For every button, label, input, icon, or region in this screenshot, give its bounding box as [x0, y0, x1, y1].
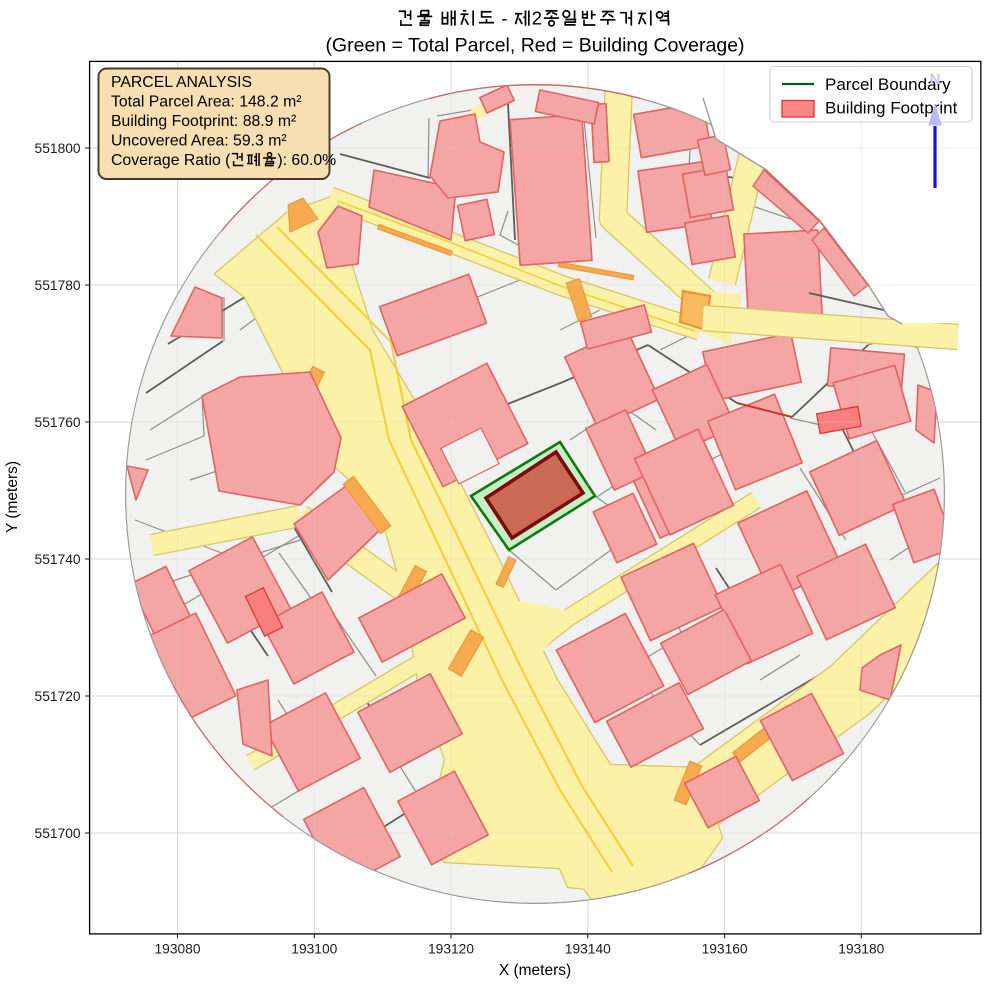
svg-text:-: - [501, 8, 507, 29]
svg-text:551740: 551740 [35, 552, 81, 567]
svg-text:Y (meters): Y (meters) [4, 461, 21, 533]
svg-text:N: N [930, 71, 941, 88]
svg-text:193140: 193140 [565, 941, 611, 956]
svg-text:Building Footprint: 88.9 m²: Building Footprint: 88.9 m² [111, 113, 296, 130]
svg-text:551800: 551800 [35, 141, 81, 156]
svg-text:Coverage Ratio (: Coverage Ratio ( [111, 152, 231, 169]
svg-text:193160: 193160 [702, 941, 748, 956]
svg-text:193180: 193180 [838, 941, 884, 956]
svg-text:193080: 193080 [154, 941, 200, 956]
svg-text:551720: 551720 [35, 689, 81, 704]
svg-text:Uncovered Area: 59.3 m²: Uncovered Area: 59.3 m² [111, 133, 287, 150]
svg-text:): 60.0%: ): 60.0% [277, 152, 336, 169]
svg-text:551760: 551760 [35, 415, 81, 430]
svg-text:193120: 193120 [428, 941, 474, 956]
svg-text:551780: 551780 [35, 278, 81, 293]
svg-text:X (meters): X (meters) [499, 962, 571, 979]
svg-text:193100: 193100 [291, 941, 337, 956]
svg-text:PARCEL ANALYSIS: PARCEL ANALYSIS [111, 74, 252, 91]
svg-text:Total Parcel Area: 148.2 m²: Total Parcel Area: 148.2 m² [111, 94, 302, 111]
svg-text:(Green = Total Parcel, Red = B: (Green = Total Parcel, Red = Building Co… [325, 35, 744, 57]
svg-text:2: 2 [532, 8, 542, 29]
svg-text:551700: 551700 [35, 826, 81, 841]
